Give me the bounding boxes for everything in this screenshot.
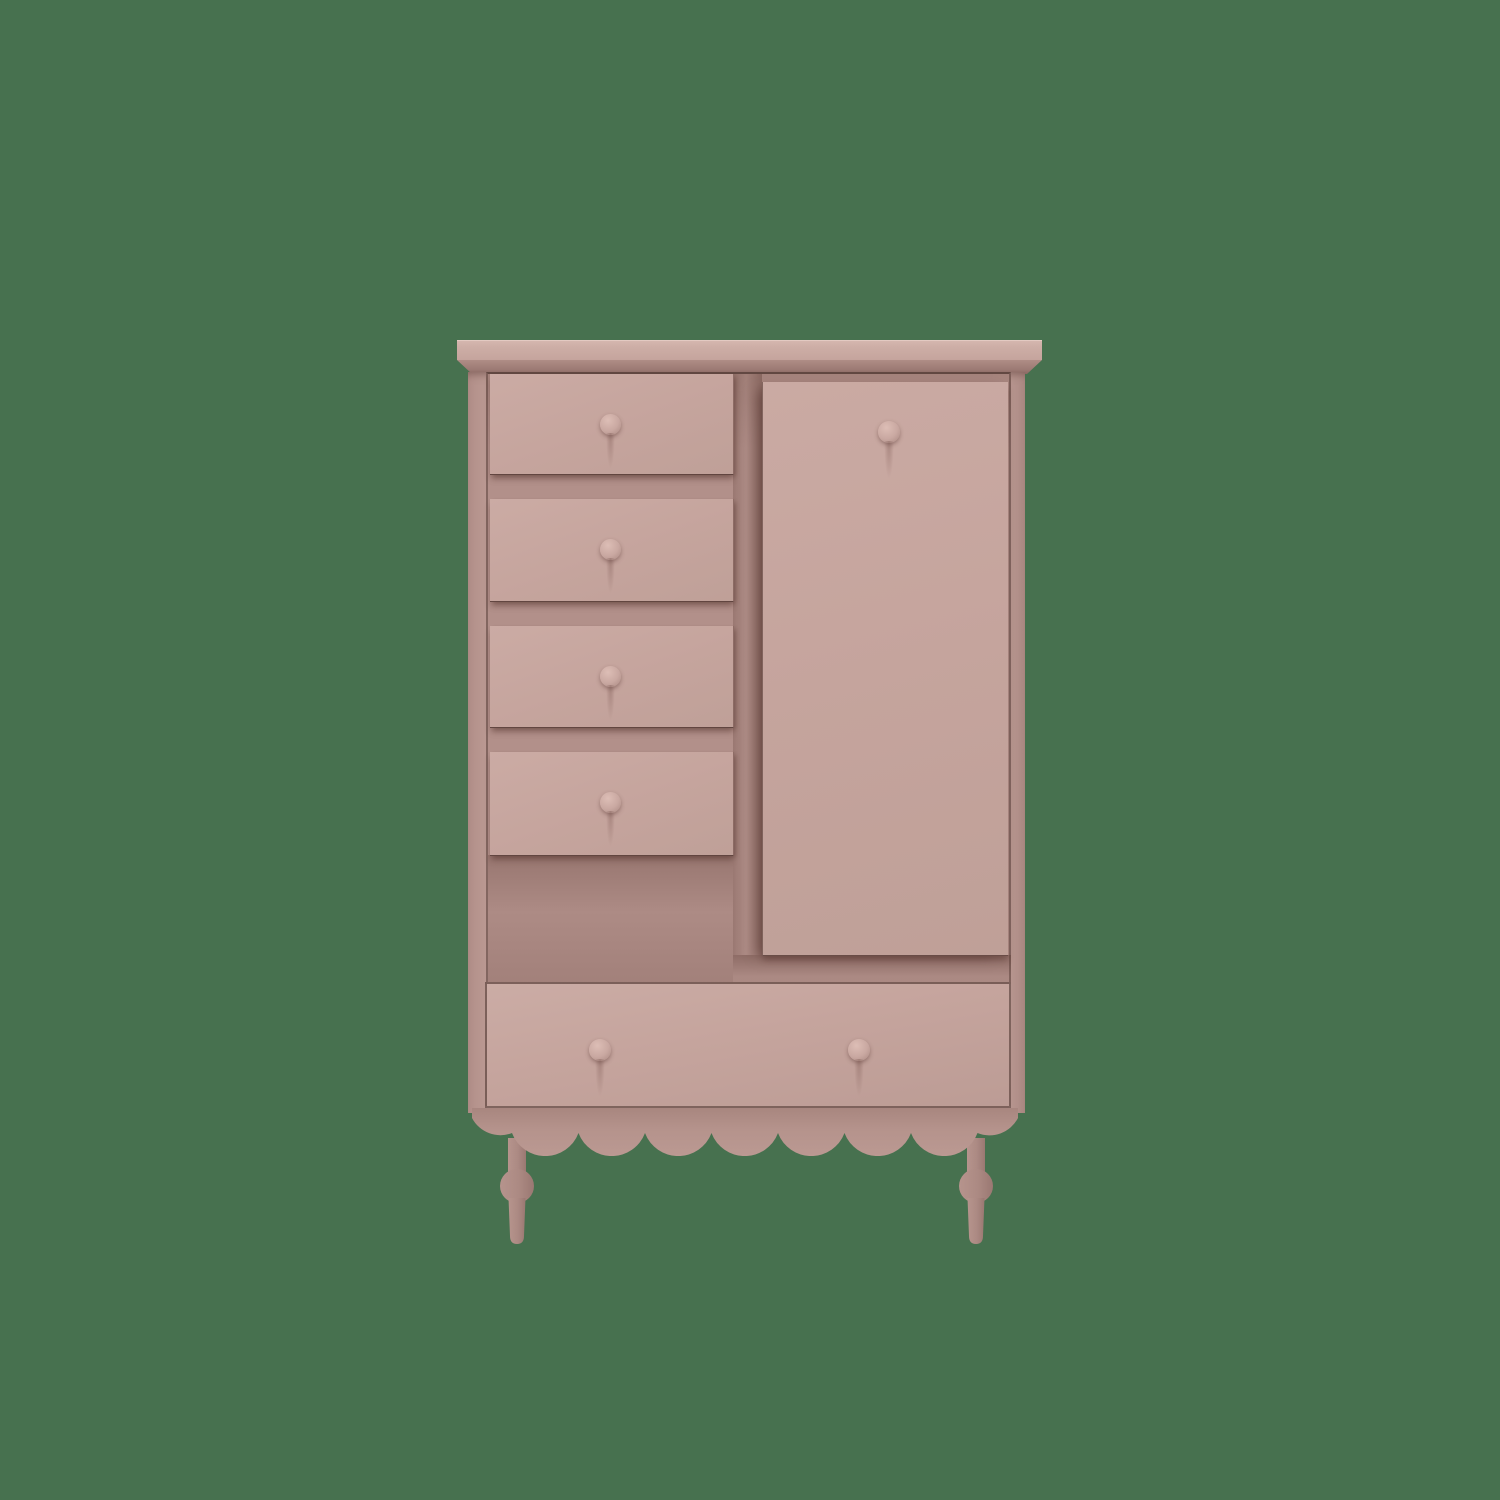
drawer-knob xyxy=(600,666,621,687)
drawer-knob xyxy=(600,792,621,813)
small-drawer-1 xyxy=(490,374,734,475)
small-drawer-3 xyxy=(490,626,734,728)
door-knob xyxy=(878,421,900,443)
small-drawer-2 xyxy=(490,499,734,602)
cabinet-cornice-top xyxy=(457,340,1042,360)
recess-below-small-drawers xyxy=(488,855,733,982)
center-divider-recess xyxy=(733,374,762,955)
wide-bottom-drawer xyxy=(485,982,1011,1108)
wardrobe-door xyxy=(762,382,1008,956)
drawer-knob xyxy=(589,1039,611,1061)
drawer-knob xyxy=(600,414,621,435)
recess-below-door xyxy=(733,955,1011,982)
scalloped-apron xyxy=(472,1108,1018,1156)
product-image-stage xyxy=(0,0,1500,1500)
drawer-knob xyxy=(848,1039,870,1061)
drawer-knob xyxy=(600,539,621,560)
small-drawer-4 xyxy=(490,752,734,856)
